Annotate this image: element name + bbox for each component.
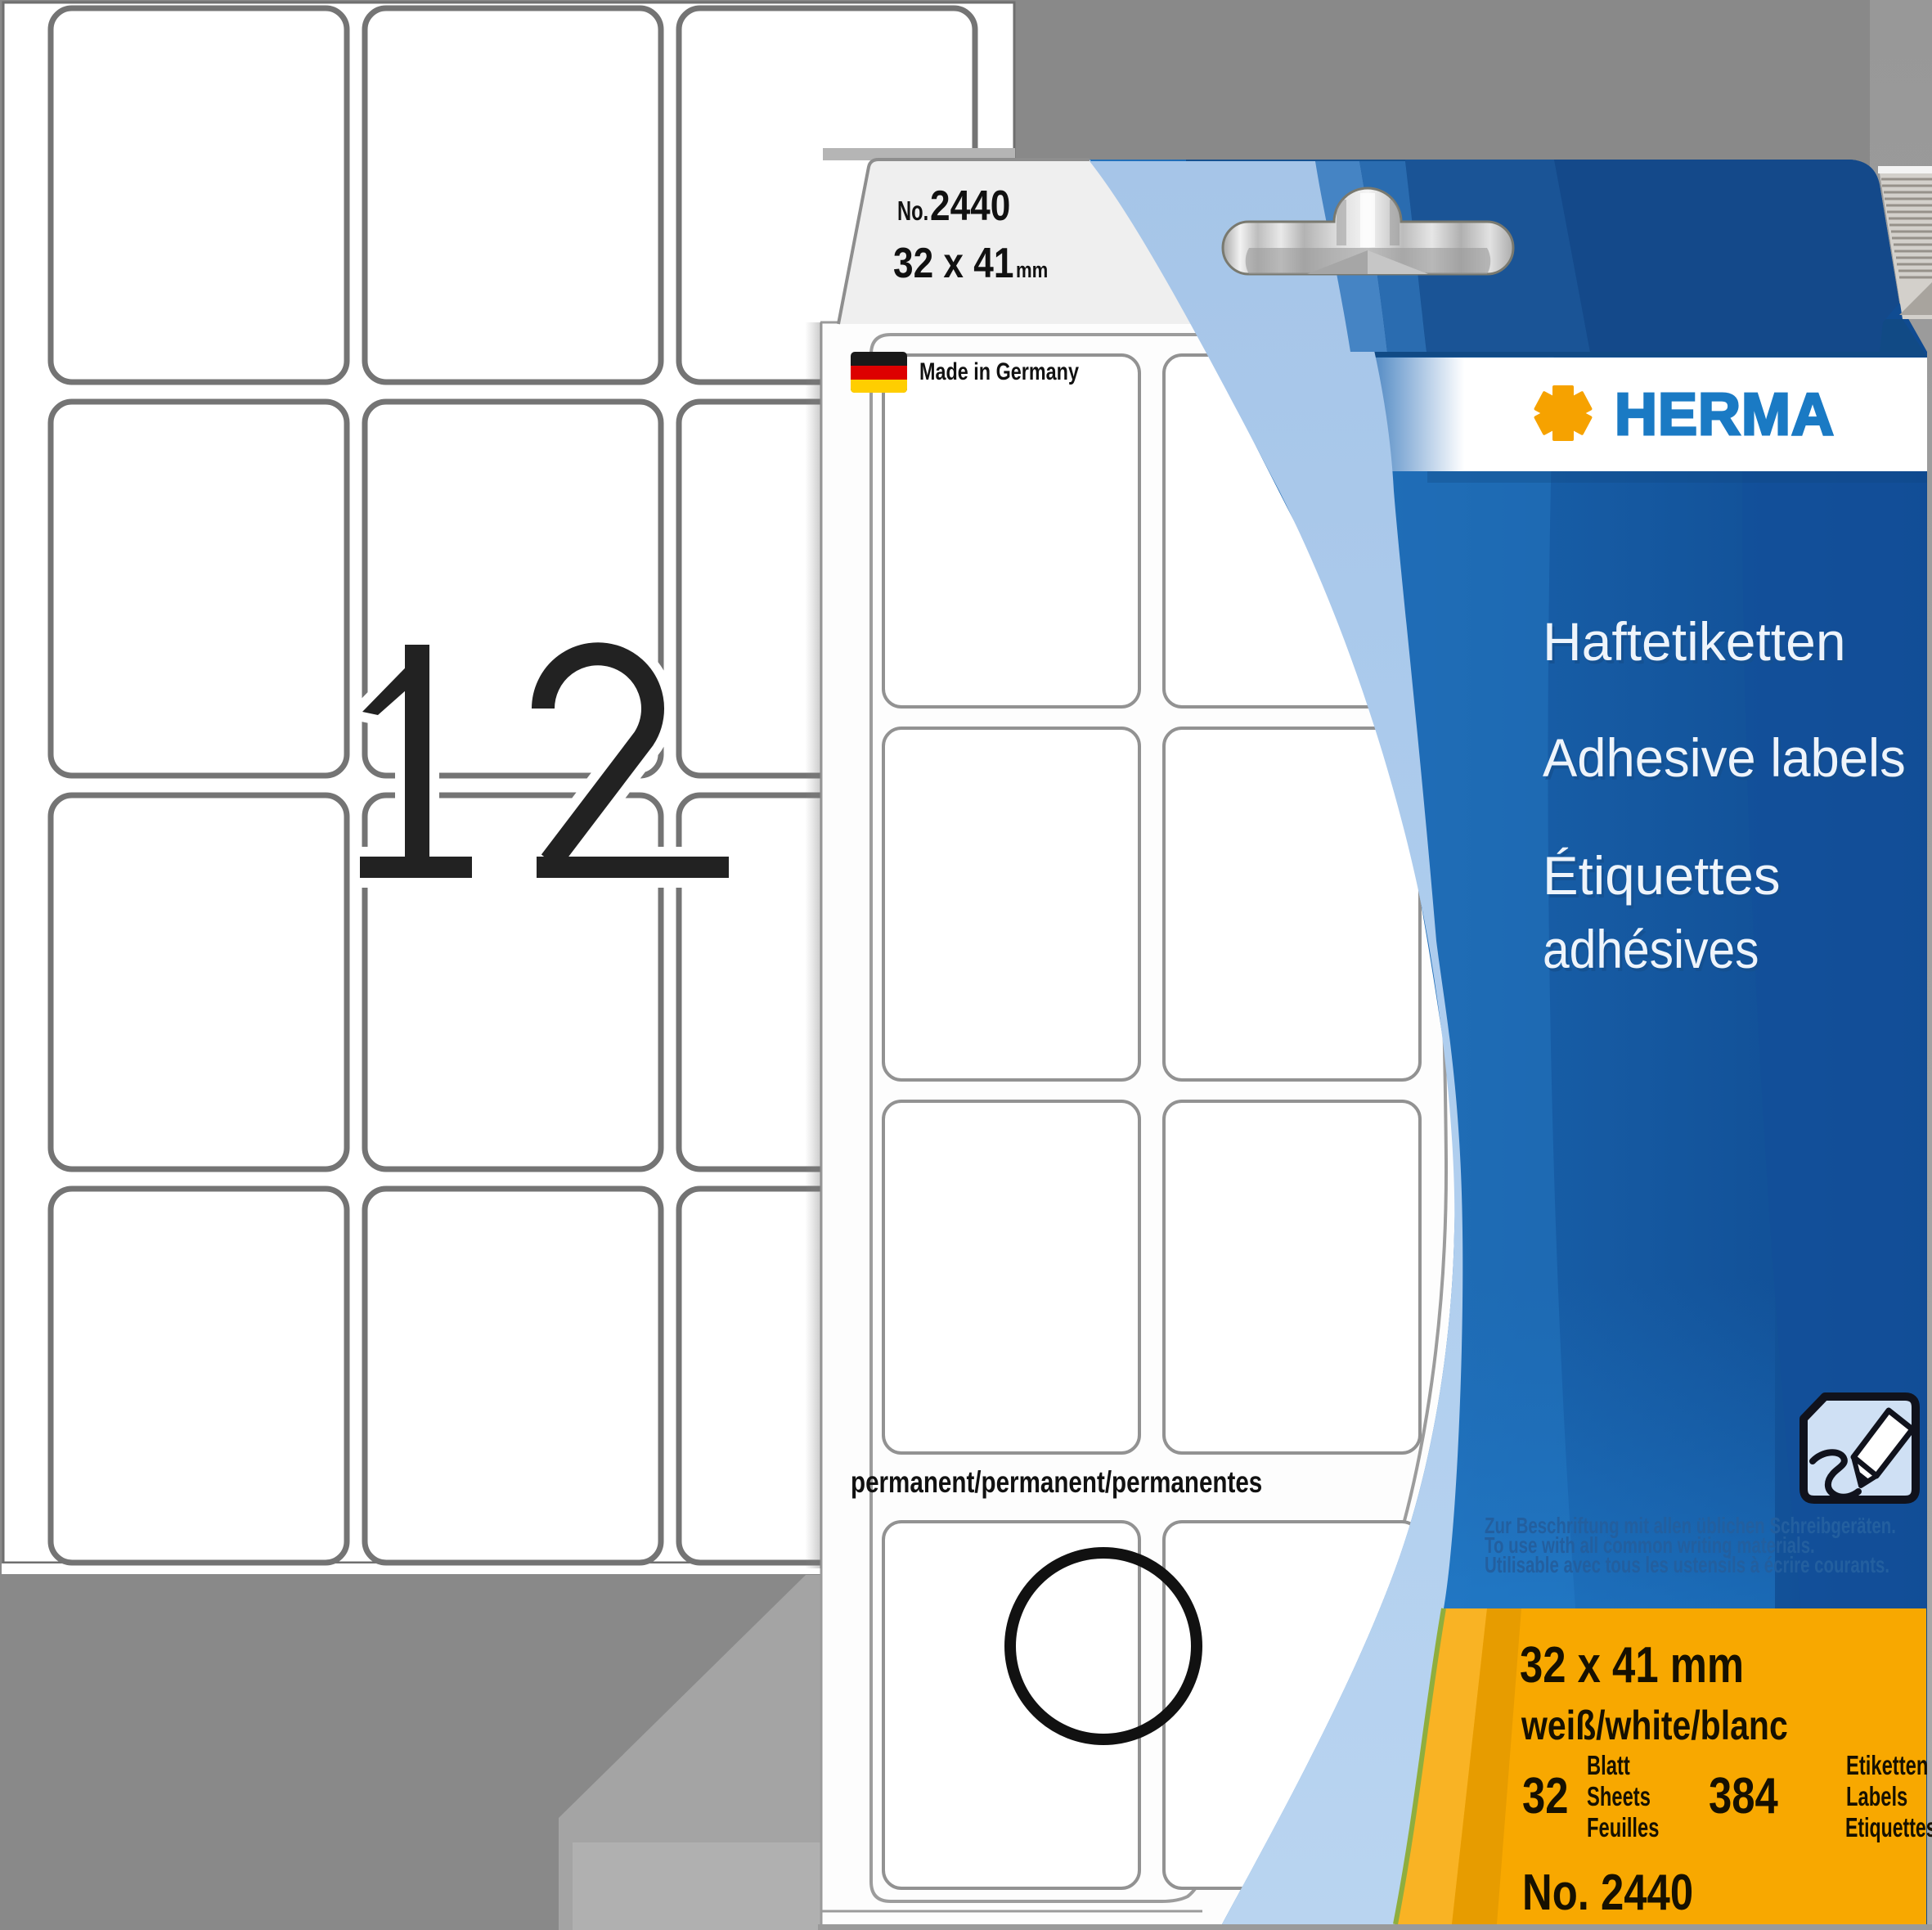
svg-text:32: 32 bbox=[1522, 1768, 1569, 1824]
svg-text:2440: 2440 bbox=[930, 182, 1010, 230]
svg-text:permanent/permanent/permanente: permanent/permanent/permanentes bbox=[851, 1466, 1262, 1500]
svg-text:mm: mm bbox=[1016, 259, 1048, 282]
svg-text:32 x 41: 32 x 41 bbox=[893, 240, 1013, 287]
svg-text:Sheets: Sheets bbox=[1587, 1782, 1651, 1812]
svg-text:Labels: Labels bbox=[1846, 1782, 1907, 1812]
svg-text:weiß/white/blanc: weiß/white/blanc bbox=[1521, 1703, 1788, 1748]
svg-text:No. 2440: No. 2440 bbox=[1522, 1865, 1693, 1921]
svg-text:Blatt: Blatt bbox=[1587, 1751, 1630, 1781]
svg-text:Adhesive labels: Adhesive labels bbox=[1543, 727, 1906, 788]
svg-text:Etiketten: Etiketten bbox=[1846, 1751, 1928, 1781]
svg-text:Made in Germany: Made in Germany bbox=[919, 358, 1079, 385]
svg-text:384: 384 bbox=[1709, 1768, 1778, 1824]
svg-text:Etiquettes: Etiquettes bbox=[1845, 1813, 1932, 1843]
svg-text:Feuilles: Feuilles bbox=[1587, 1813, 1659, 1843]
svg-text:HERMA: HERMA bbox=[1615, 382, 1835, 448]
svg-text:adhésives: adhésives bbox=[1543, 920, 1759, 980]
svg-text:No.: No. bbox=[897, 196, 928, 227]
svg-text:Utilisable avec tous les usten: Utilisable avec tous les ustensils à écr… bbox=[1485, 1553, 1889, 1578]
svg-text:32 x 41 mm: 32 x 41 mm bbox=[1520, 1637, 1744, 1694]
svg-text:Haftetiketten: Haftetiketten bbox=[1543, 611, 1846, 672]
svg-text:Étiquettes: Étiquettes bbox=[1543, 846, 1781, 906]
